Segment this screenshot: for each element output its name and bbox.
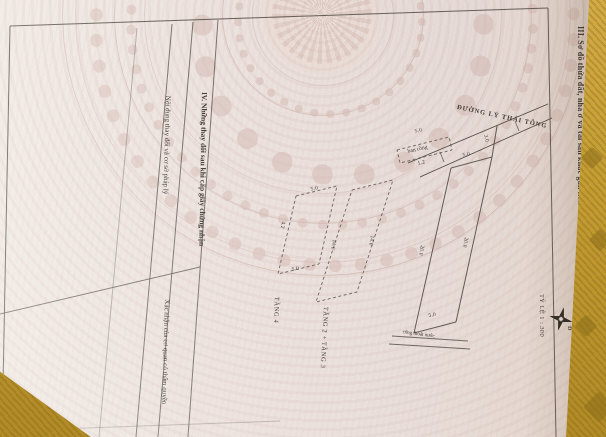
photo-of-land-certificate: { "page": { "section3_title": "III. Sơ đ… — [0, 0, 606, 437]
fabric-motif — [575, 315, 598, 338]
fabric-motif — [589, 229, 606, 252]
photo-light-overlay — [0, 0, 606, 437]
certificate-page: III. Sơ đồ thửa đất, nhà ở và tài sản kh… — [0, 0, 606, 437]
fabric-motif — [581, 147, 604, 170]
fabric-motif — [583, 391, 606, 422]
